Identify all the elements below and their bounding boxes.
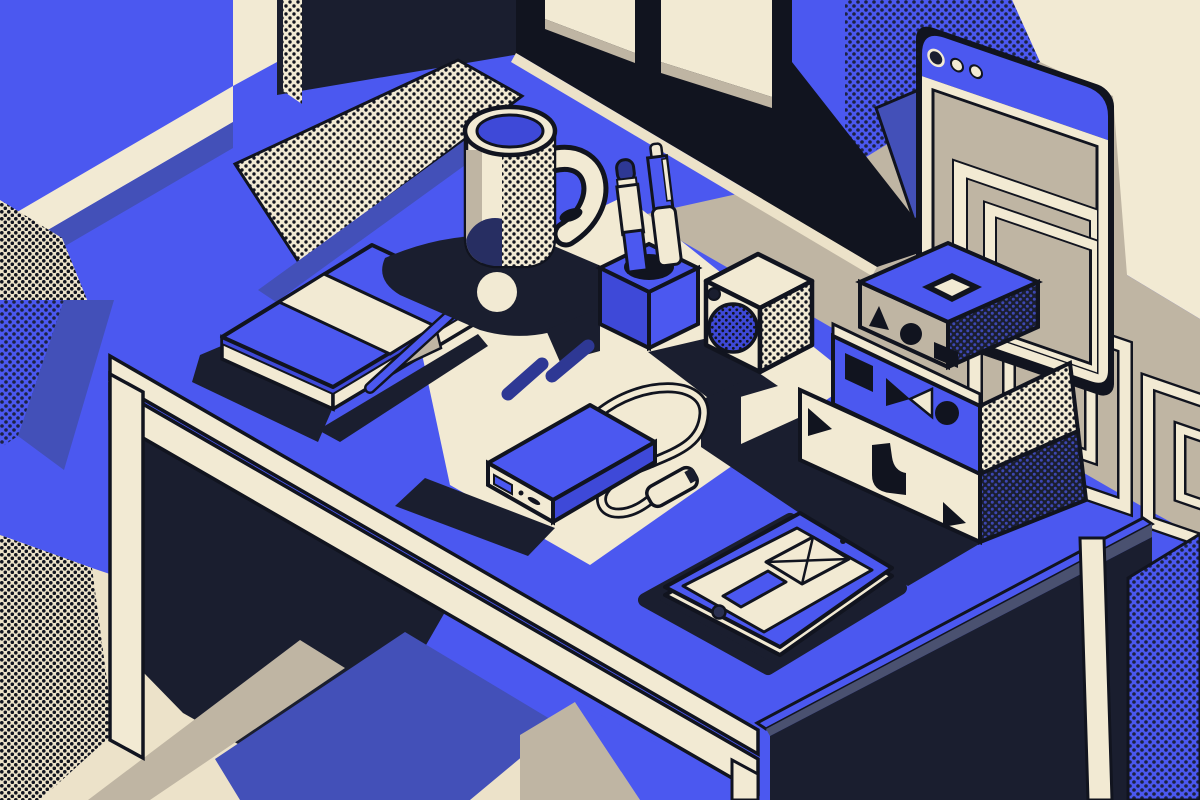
- mug-shadow-hole: [477, 272, 517, 312]
- camera-dot-icon: [840, 538, 846, 544]
- mug-coffee: [477, 115, 543, 147]
- dotted-strip: [283, 0, 302, 104]
- dotted-blue-panel-bottom-right: [1128, 534, 1200, 800]
- pen-barrel: [617, 184, 644, 234]
- speaker-cone: [709, 304, 757, 352]
- speaker-led-icon: [708, 288, 720, 300]
- pen-lower: [623, 230, 647, 272]
- pen2-barrel: [652, 206, 682, 266]
- desk-left-leg: [110, 374, 143, 758]
- illustration-stage: window frame browser window with three d…: [0, 0, 1200, 800]
- power-bank-led-icon: [519, 491, 524, 496]
- top-box-circle-icon: [900, 323, 922, 345]
- isometric-desk-illustration: [0, 0, 1200, 800]
- home-button-icon: [713, 606, 726, 619]
- middle-box-circle-icon: [935, 401, 959, 425]
